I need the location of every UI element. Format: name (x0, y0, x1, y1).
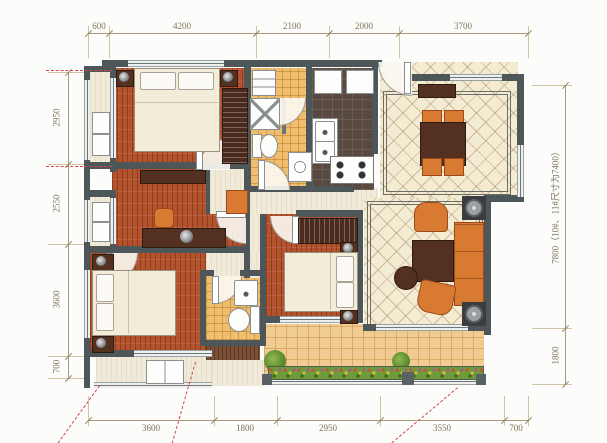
wall-corridor-bottom (296, 210, 362, 217)
toilet-bowl (260, 134, 278, 158)
dim-bottom-1800: 1800 (215, 423, 275, 434)
dim-top-2000: 2000 (334, 21, 394, 32)
plant-stand (462, 302, 486, 326)
lamp (119, 72, 129, 82)
dining-chair (444, 158, 464, 176)
window-dining-top (450, 74, 502, 81)
balcony-chair (146, 360, 184, 384)
bathroom1-door-leaf (258, 160, 265, 190)
dim-left-2550: 2550 (52, 164, 63, 244)
dim-right-1800: 1800 (551, 316, 562, 396)
dimension-line-right (565, 85, 566, 384)
blanket-line (134, 102, 218, 103)
rail-post (262, 374, 272, 385)
dim-top-3700: 3700 (433, 21, 493, 32)
dim-left-700: 700 (52, 327, 63, 407)
balcony-chair (92, 202, 110, 242)
projection-line-sw1 (57, 385, 100, 443)
window-balcony2-inner (110, 198, 116, 244)
blanket-line (330, 252, 331, 310)
window-bedroom1-left (110, 78, 116, 158)
projection-line-top1 (46, 70, 112, 71)
desk-caster (180, 230, 193, 243)
toilet-tank (250, 306, 260, 334)
kitchen-counter (346, 70, 374, 94)
coffee-table (412, 240, 454, 282)
toilet-bowl (228, 308, 250, 332)
wardrobe-bedroom1 (222, 88, 248, 164)
window-living-south (376, 324, 468, 331)
sink-bathroom2 (234, 280, 258, 306)
dim-bottom-700: 700 (486, 423, 546, 434)
dim-top-600: 600 (69, 21, 129, 32)
dimension-line-bottom (88, 420, 528, 421)
pillow (336, 256, 354, 282)
dim-bottom-2950: 2950 (298, 423, 358, 434)
wall-bathroom2-bottom (200, 340, 266, 346)
shower-stall (250, 98, 280, 130)
armchair (414, 202, 448, 232)
pillow (96, 303, 114, 331)
wall-bathroom2-left (200, 276, 206, 340)
rail-post (476, 374, 486, 385)
dim-bottom-3600: 3600 (121, 423, 181, 434)
desk-chair (154, 208, 174, 228)
pillow (96, 274, 114, 302)
lamp (343, 311, 353, 321)
projection-line-se (391, 387, 458, 443)
dim-right-7800: 7800（10#、11#尺寸为7400） (551, 121, 562, 291)
sink-basin (315, 121, 335, 142)
dimension-line-left (68, 72, 69, 378)
kitchen-counter (314, 70, 342, 94)
dimension-line-top (88, 33, 528, 34)
window-bedroom3-left (84, 270, 90, 338)
side-table-round (394, 266, 418, 290)
window-balcony1-outer (84, 80, 90, 160)
dim-bottom-3550: 3550 (412, 423, 472, 434)
stove (330, 156, 374, 184)
dim-top-2100: 2100 (262, 21, 322, 32)
wardrobe-bedroom4 (298, 218, 358, 244)
pillow (178, 72, 214, 90)
pillow (140, 72, 176, 90)
window-balcony2-outer (84, 200, 90, 242)
bathroom2-door-leaf (212, 276, 219, 304)
dim-left-2950: 2950 (52, 78, 63, 158)
bath-shelf (252, 70, 276, 96)
deck-step-floor (212, 360, 264, 386)
wall-vestibule (206, 166, 210, 214)
floor-plan-image: 600 4200 2100 2000 3700 3600 1800 2950 3… (0, 0, 607, 443)
window-bedroom3-balcony (134, 350, 212, 357)
window-dining-right (517, 145, 524, 197)
rail-post (402, 372, 414, 385)
sideboard (418, 84, 456, 98)
balcony-chair (92, 112, 110, 156)
washing-machine (288, 152, 312, 182)
plant-stand (462, 196, 486, 220)
cabinet-study (226, 190, 248, 214)
dining-chair (422, 158, 442, 176)
sofa (454, 222, 484, 306)
wall-balcony1-top (84, 66, 110, 72)
lamp (96, 338, 106, 348)
window-bedroom1-top (128, 60, 224, 67)
flower-bed (268, 366, 484, 380)
entry-door-leaf (404, 62, 411, 94)
lamp (96, 256, 106, 266)
shelf-study (140, 170, 206, 184)
blanket-line (128, 270, 129, 334)
dim-top-4200: 4200 (152, 21, 212, 32)
pillow (336, 282, 354, 308)
projection-line-top2 (46, 166, 112, 167)
lamp (223, 72, 233, 82)
